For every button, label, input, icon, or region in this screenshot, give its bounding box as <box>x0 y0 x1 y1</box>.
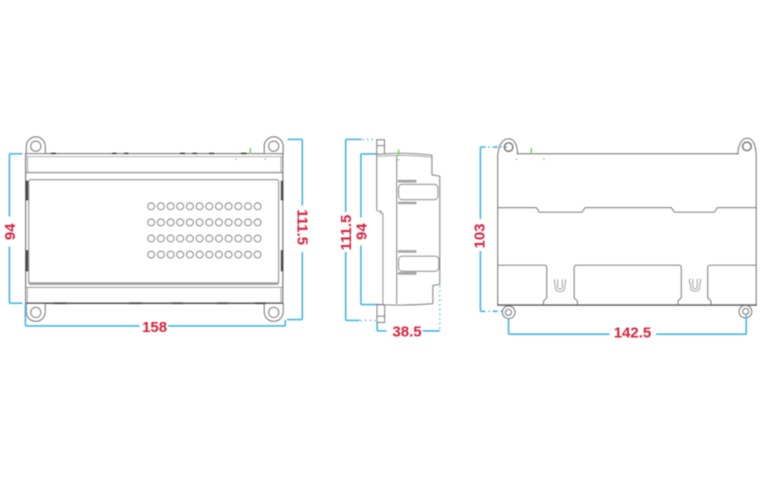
svg-text:111.5: 111.5 <box>293 209 310 245</box>
svg-text:94: 94 <box>2 223 19 240</box>
svg-text:111.5: 111.5 <box>338 215 355 251</box>
svg-text:38.5: 38.5 <box>392 324 421 341</box>
svg-text:103: 103 <box>472 223 489 248</box>
svg-text:158: 158 <box>142 319 167 336</box>
svg-text:94: 94 <box>353 223 370 240</box>
svg-text:142.5: 142.5 <box>614 325 652 342</box>
